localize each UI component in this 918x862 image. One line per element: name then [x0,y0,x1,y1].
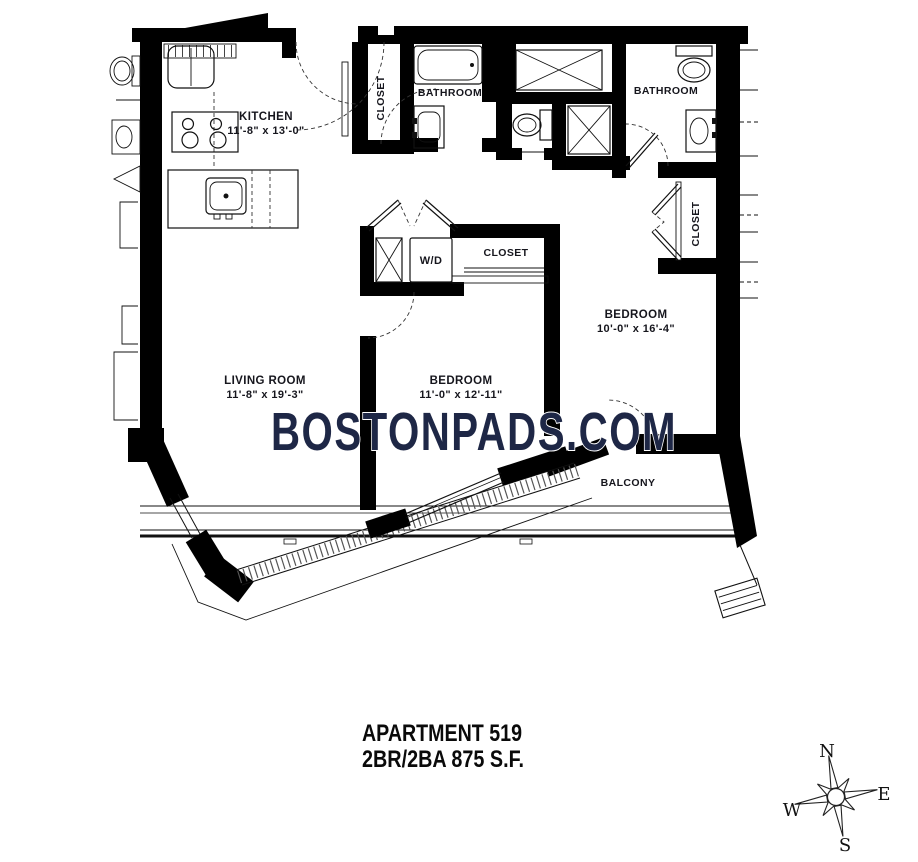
bathroom1-left-wall [400,42,414,154]
living-room-dims: 11'-8" x 19'-3" [226,389,303,401]
compass-south-label: S [839,835,851,856]
entry-door-leaf [342,62,348,136]
bathroom2-label: BATHROOM [634,85,698,97]
bathroom2-door-jamb [612,162,626,178]
watermark-text: BOSTONPADS.COM [271,402,677,462]
living-room-label: LIVING ROOM [224,375,306,387]
compass-west-label: W [783,800,802,821]
laundry-bottom-wall [360,282,464,296]
wc-left-wall [496,96,512,156]
bathroom1-label: BATHROOM [418,87,482,99]
bedroom1-label: BEDROOM [430,375,493,387]
entry-closet-label: CLOSET [375,75,387,120]
entry-jamb [282,42,296,58]
bathroom2-bottom-wall [658,162,716,178]
kitchen-label: KITCHEN [239,111,293,123]
wc-shower-divider [552,100,566,162]
bedroom2-closet-label: CLOSET [690,201,702,246]
laundry-left-wall [360,226,374,288]
entry-closet-left-wall [352,42,368,154]
kitchen-dims: 11'-8" x 13'-0" [227,125,304,137]
apartment-title: APARTMENT 519 [362,720,522,747]
closet-track [676,182,681,260]
compass-east-label: E [877,784,890,805]
balcony-label: BALCONY [601,477,656,489]
bathroom1-bottom-wall-a [400,138,438,152]
left-wall [140,28,162,448]
bathroom2-left-wall [612,44,626,166]
compass-north-label: N [819,741,835,762]
floorplan-svg: KITCHEN 11'-8" x 13'-0" LIVING ROOM 11'-… [0,0,918,862]
floorplan-image: KITCHEN 11'-8" x 13'-0" LIVING ROOM 11'-… [0,0,918,862]
bedroom2-dims: 10'-0" x 16'-4" [597,323,675,335]
bedroom1-dims: 11'-0" x 12'-11" [419,389,502,401]
bedroom2-label: BEDROOM [605,309,668,321]
right-wall [716,44,740,442]
bedroom2-closet-bottom-wall [658,258,716,274]
washer-dryer-label: W/D [420,255,443,267]
hall-closet-label: CLOSET [484,247,529,259]
hall-closet-top-wall [450,224,560,238]
top-right-wall [358,26,748,44]
apartment-subtitle: 2BR/2BA 875 S.F. [362,746,524,773]
wc-bottom-wall-a [496,148,522,160]
